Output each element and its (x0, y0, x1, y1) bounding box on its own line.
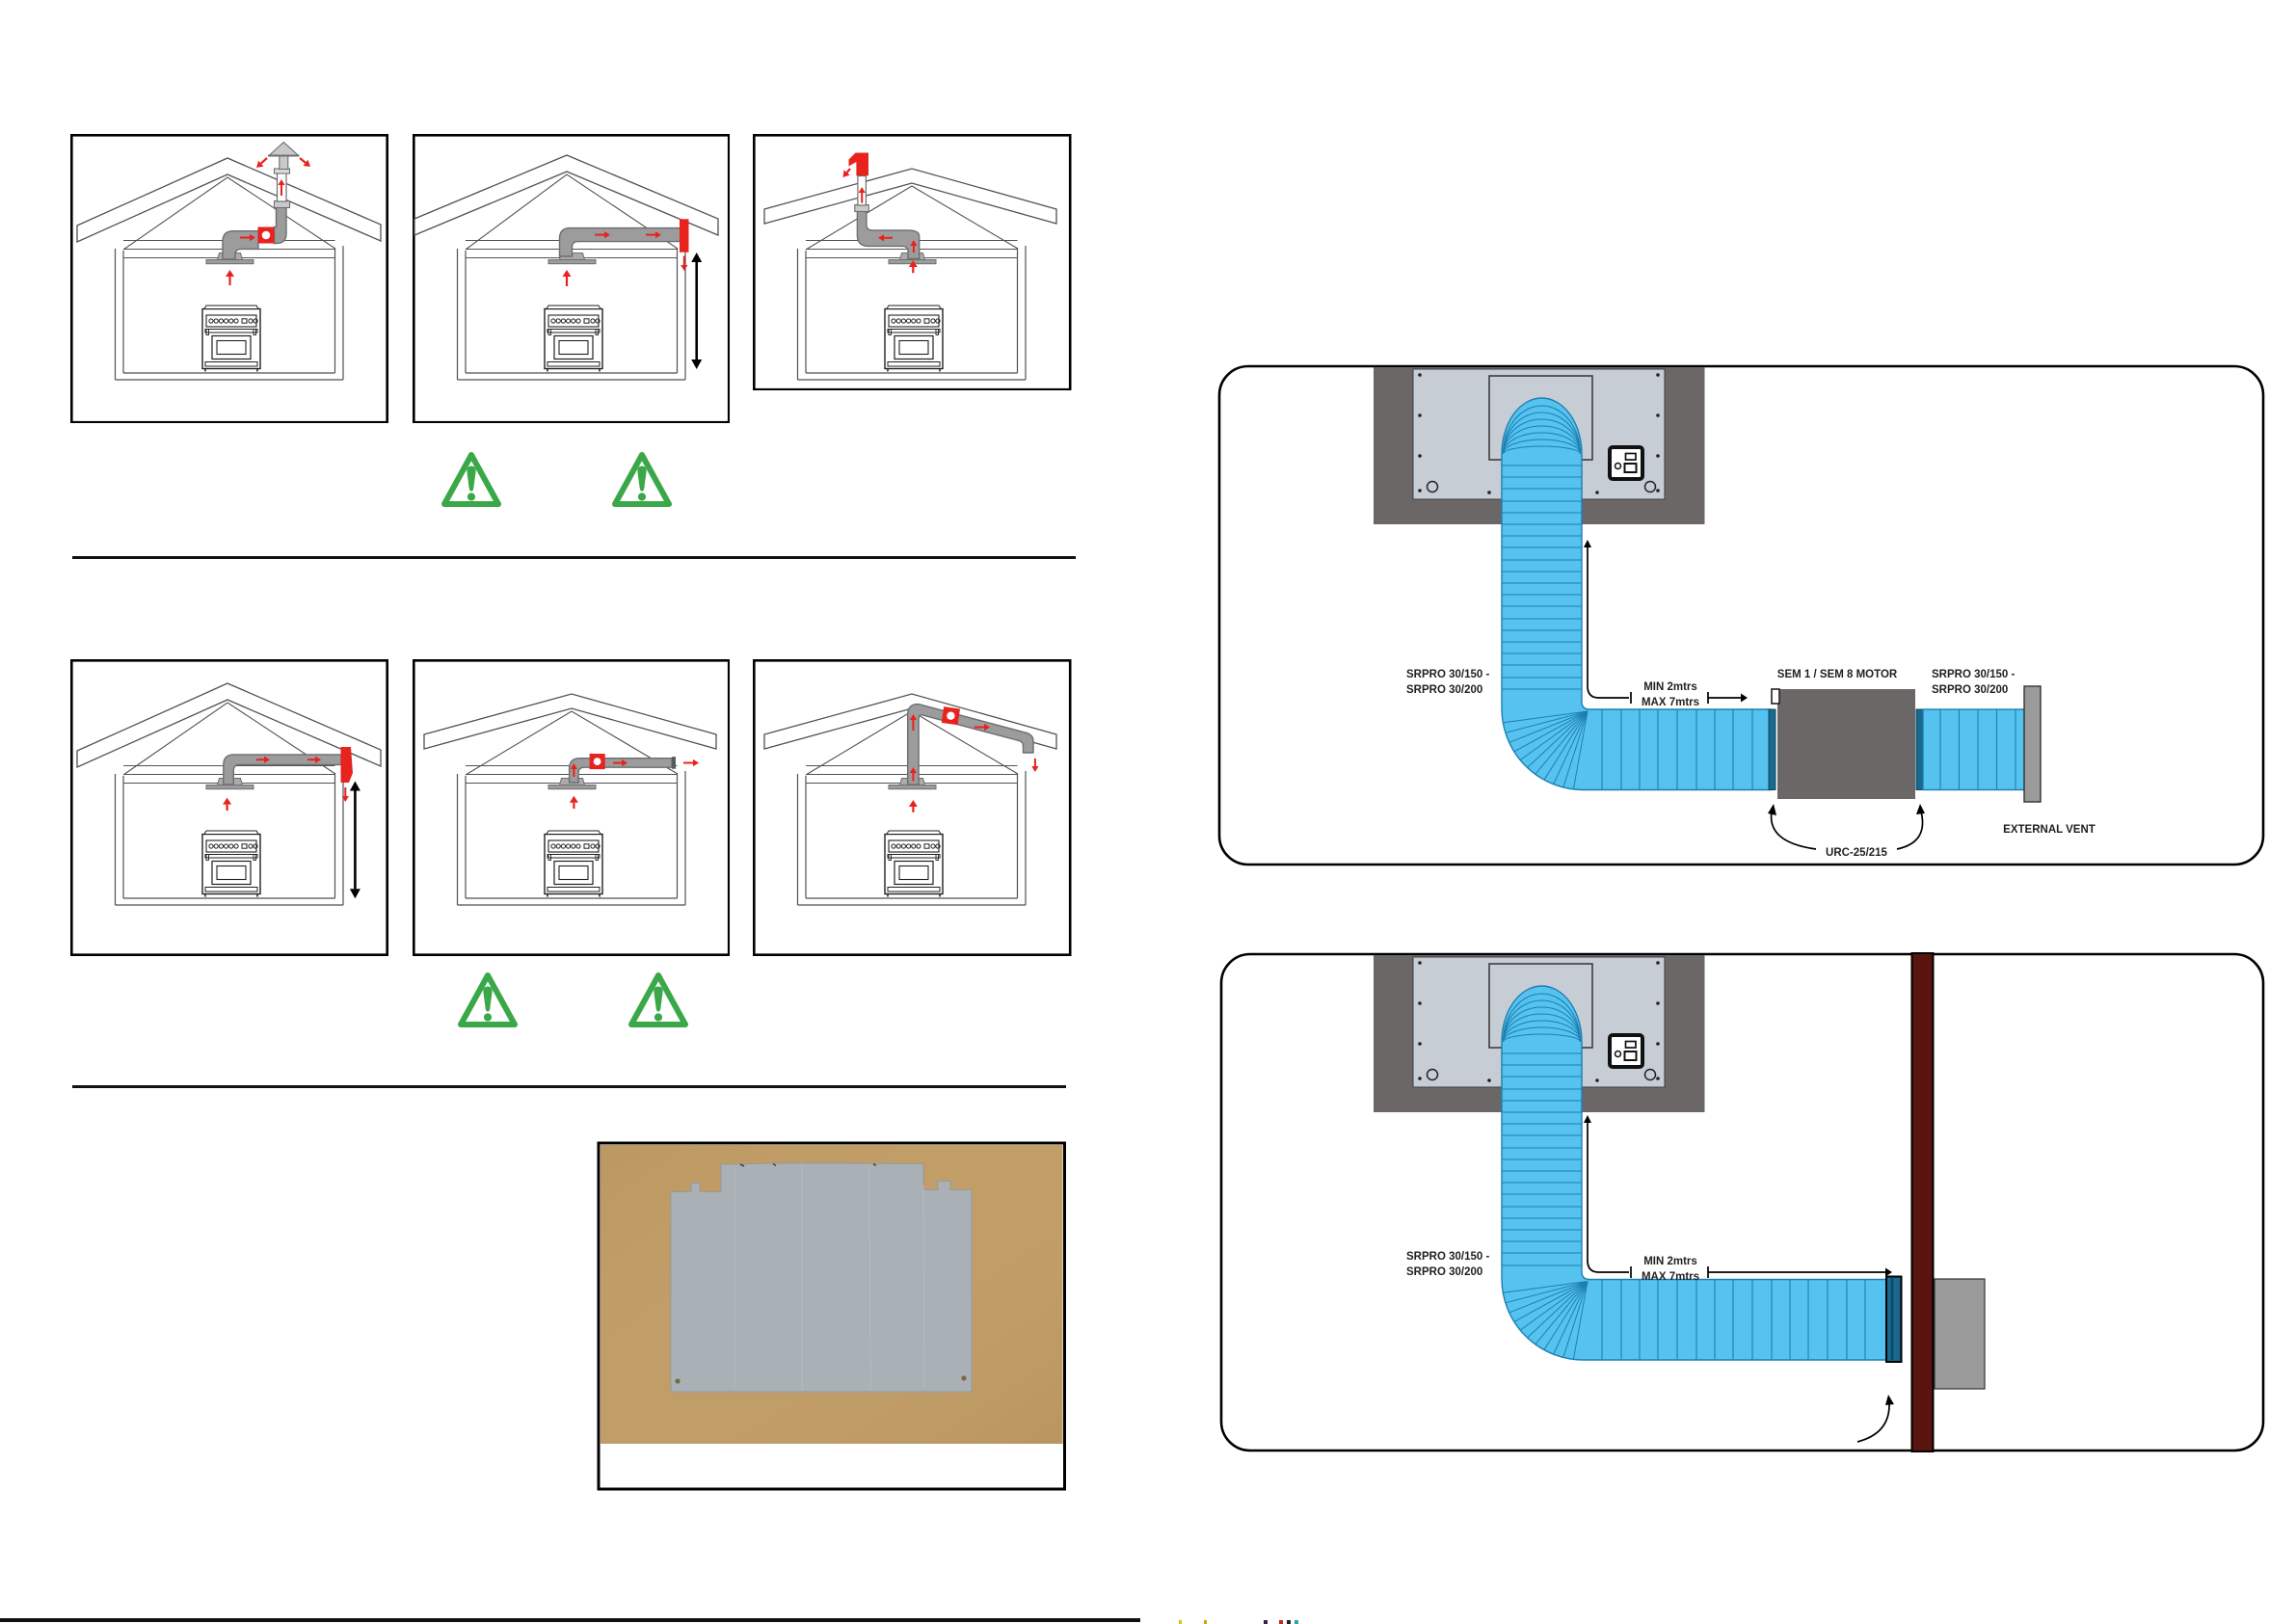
svg-text:SRPRO 30/150 -: SRPRO 30/150 - (1406, 669, 1489, 680)
svg-text:MAX 7mtrs: MAX 7mtrs (1642, 697, 1699, 708)
svg-text:MIN 2mtrs: MIN 2mtrs (1643, 681, 1697, 693)
svg-text:SRPRO 30/150 -: SRPRO 30/150 - (1406, 1251, 1489, 1263)
svg-text:SEM 1 / SEM 8 MOTOR: SEM 1 / SEM 8 MOTOR (1777, 669, 1898, 680)
svg-text:URC-25/215: URC-25/215 (1826, 847, 1888, 859)
svg-text:EXTERNAL VENT: EXTERNAL VENT (2003, 824, 2096, 836)
svg-text:SRPRO 30/200: SRPRO 30/200 (1932, 684, 2008, 696)
svg-text:SRPRO 30/200: SRPRO 30/200 (1406, 1266, 1482, 1278)
svg-text:MAX 7mtrs: MAX 7mtrs (1642, 1271, 1699, 1283)
svg-text:SRPRO 30/200: SRPRO 30/200 (1406, 684, 1482, 696)
svg-text:SRPRO 30/150 -: SRPRO 30/150 - (1932, 669, 2015, 680)
svg-text:MIN 2mtrs: MIN 2mtrs (1643, 1256, 1697, 1267)
